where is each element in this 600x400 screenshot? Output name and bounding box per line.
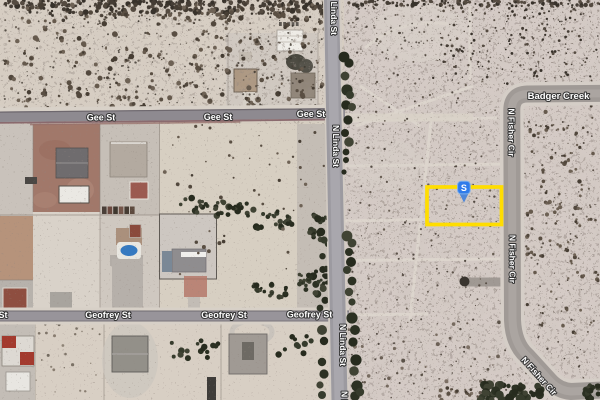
- svg-text:N Linda St: N Linda St: [331, 125, 341, 167]
- svg-text:Gee St: Gee St: [204, 112, 233, 122]
- svg-text:Geofrey St: Geofrey St: [85, 310, 131, 320]
- svg-text:St: St: [0, 310, 8, 320]
- svg-text:S: S: [461, 183, 467, 193]
- svg-text:Geofrey St: Geofrey St: [287, 310, 333, 320]
- svg-text:N Linda St: N Linda St: [340, 391, 350, 400]
- svg-text:Gee St: Gee St: [87, 113, 116, 123]
- svg-text:N Linda St: N Linda St: [329, 0, 339, 35]
- svg-text:N Linda St: N Linda St: [338, 324, 348, 366]
- svg-text:N Fisher Cir: N Fisher Cir: [507, 108, 517, 157]
- svg-text:Gee St: Gee St: [297, 109, 326, 119]
- svg-text:N Fisher Cir: N Fisher Cir: [508, 235, 518, 284]
- svg-text:Geofrey St: Geofrey St: [201, 310, 247, 320]
- svg-text:Badger Creek: Badger Creek: [528, 91, 590, 102]
